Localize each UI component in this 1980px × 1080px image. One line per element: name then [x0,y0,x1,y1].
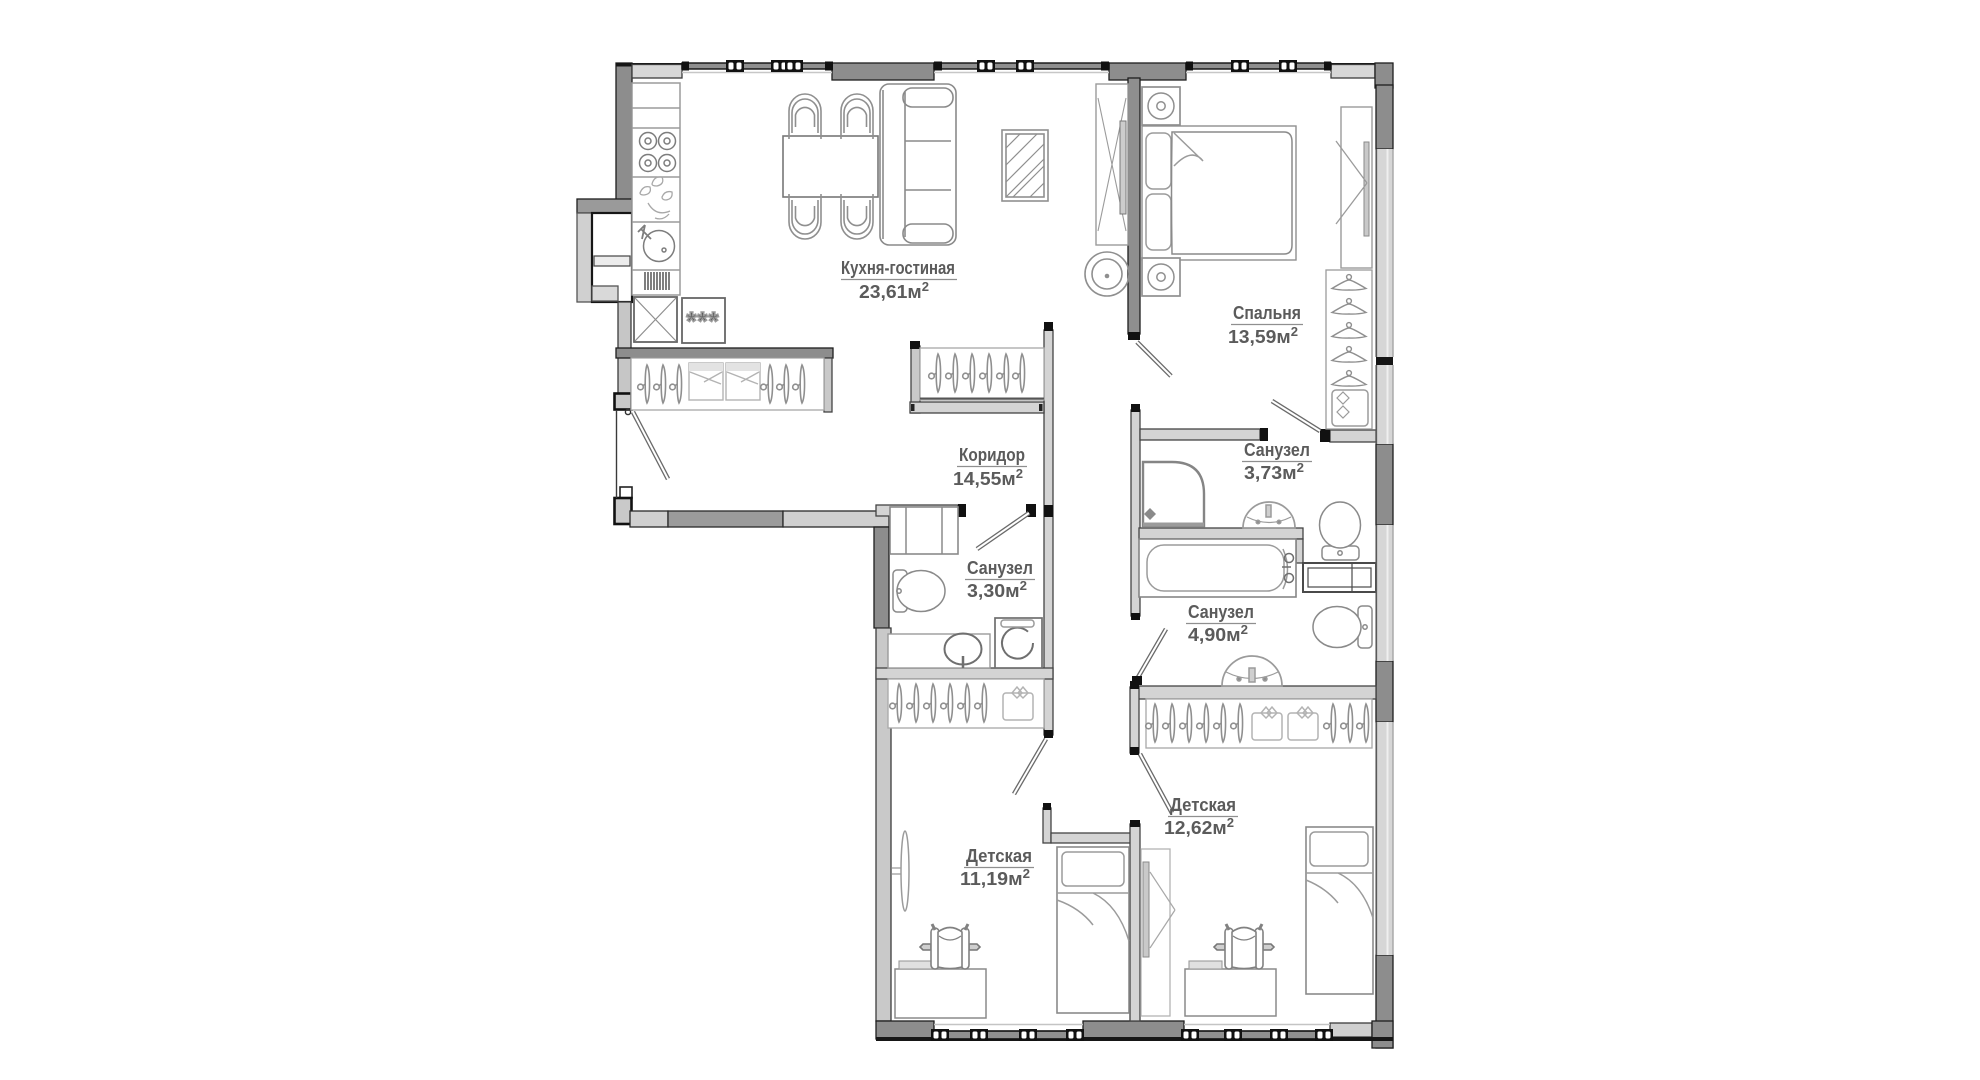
svg-text:Детская: Детская [1170,794,1236,815]
svg-text:11,19м2: 11,19м2 [960,867,1030,889]
svg-text:Спальня: Спальня [1233,302,1301,323]
svg-text:Санузел: Санузел [967,557,1033,578]
svg-text:Санузел: Санузел [1188,601,1254,622]
svg-text:Коридор: Коридор [959,444,1025,465]
svg-text:12,62м2: 12,62м2 [1164,816,1234,838]
svg-text:Детская: Детская [966,845,1032,866]
svg-text:***: *** [686,306,719,336]
svg-text:23,61м2: 23,61м2 [859,280,929,302]
svg-text:3,30м2: 3,30м2 [967,579,1027,601]
svg-text:4,90м2: 4,90м2 [1188,623,1248,645]
svg-text:Санузел: Санузел [1244,439,1310,460]
svg-text:14,55м2: 14,55м2 [953,467,1023,489]
svg-text:13,59м2: 13,59м2 [1228,325,1298,347]
svg-text:Кухня-гостиная: Кухня-гостиная [841,257,955,278]
svg-text:3,73м2: 3,73м2 [1244,461,1304,483]
